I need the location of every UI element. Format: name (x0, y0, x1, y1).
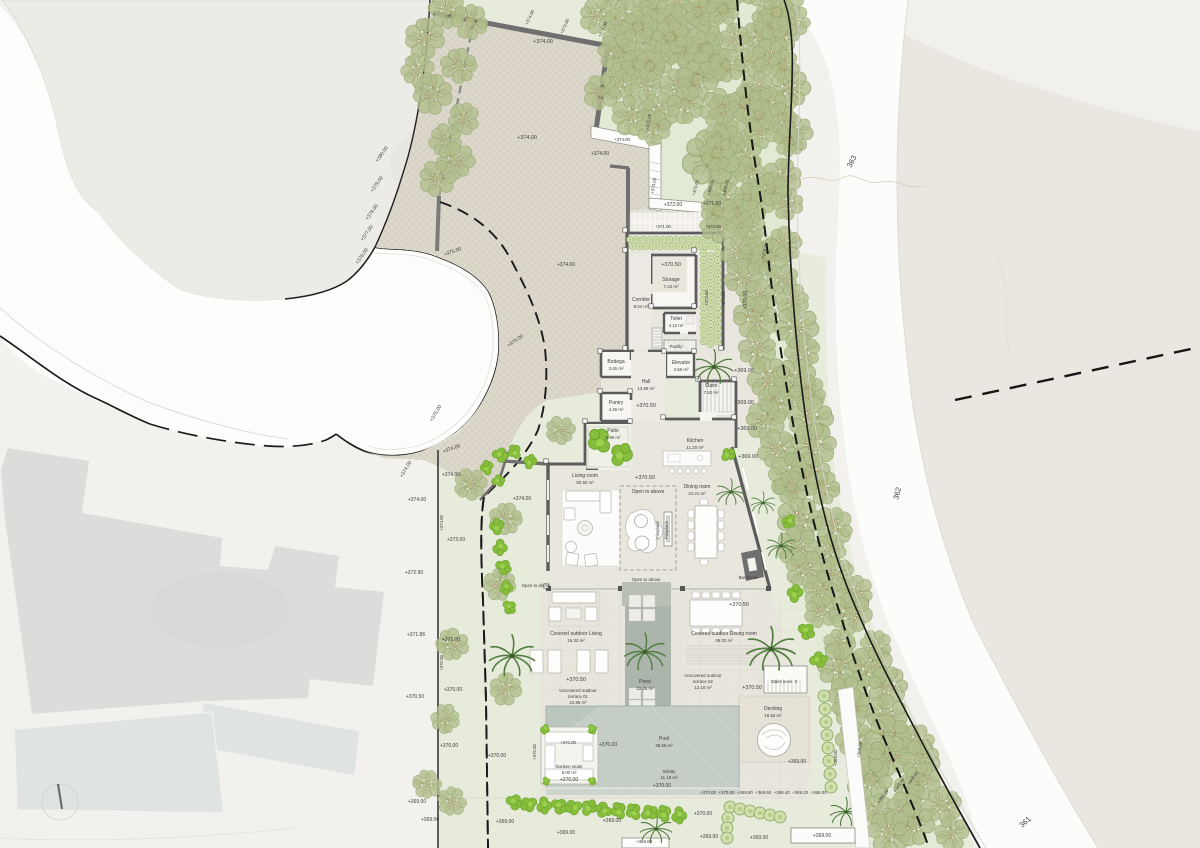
svg-text:+369.00: +369.00 (750, 835, 768, 841)
svg-text:+370.00: +370.00 (694, 811, 712, 817)
svg-text:Open to above: Open to above (632, 489, 665, 495)
svg-text:+374.00: +374.00 (517, 135, 537, 141)
svg-text:39.02 m²: 39.02 m² (715, 638, 733, 643)
svg-text:Uncovered outdoor: Uncovered outdoor (684, 673, 722, 678)
svg-text:+374.00: +374.00 (513, 496, 531, 502)
svg-text:4.49 m²: 4.49 m² (609, 407, 624, 412)
svg-text:+370.00: +370.00 (599, 742, 617, 748)
svg-text:Stairs level -2: Stairs level -2 (771, 679, 798, 684)
svg-text:+370.50: +370.50 (566, 677, 586, 683)
svg-text:11.19 m²: 11.19 m² (660, 775, 678, 780)
svg-text:19.62 m²: 19.62 m² (764, 713, 782, 718)
svg-text:3.46 m²: 3.46 m² (609, 366, 624, 371)
svg-text:+370.50: +370.50 (742, 685, 762, 691)
svg-text:+370.50: +370.50 (439, 654, 444, 671)
svg-text:Open to above: Open to above (522, 583, 551, 588)
svg-text:+370.00: +370.00 (721, 290, 726, 307)
svg-text:+370.50: +370.50 (406, 694, 424, 700)
svg-text:24.85 m²: 24.85 m² (569, 700, 587, 705)
svg-text:Covered outdoor Dining room: Covered outdoor Dining room (691, 631, 757, 637)
svg-text:+370.00: +370.00 (743, 291, 749, 309)
svg-text:+370.50: +370.50 (636, 403, 656, 409)
svg-text:+374.00: +374.00 (408, 497, 426, 503)
svg-text:+371.00: +371.00 (703, 201, 721, 207)
svg-text:+370.00: +370.00 (444, 687, 462, 693)
svg-text:50.50 m²: 50.50 m² (576, 480, 594, 485)
svg-text:+371.00: +371.00 (655, 224, 672, 229)
svg-text:Decking: Decking (764, 706, 782, 712)
svg-text:+374.00: +374.00 (614, 137, 631, 142)
svg-text:Barbecue: Barbecue (739, 575, 758, 580)
svg-text:+369.00: +369.00 (737, 426, 757, 432)
svg-text:Kitchen: Kitchen (687, 438, 704, 444)
svg-text:+369.00: +369.00 (738, 454, 758, 460)
svg-text:2.56 m²: 2.56 m² (674, 367, 689, 372)
svg-text:12.16 m²: 12.16 m² (694, 685, 712, 690)
svg-text:+369.00: +369.00 (833, 749, 838, 766)
svg-text:+374.00: +374.00 (557, 262, 575, 268)
svg-text:+369.00: +369.00 (557, 830, 575, 836)
svg-text:24.21 m²: 24.21 m² (688, 491, 706, 496)
svg-text:+374.00: +374.00 (439, 514, 444, 531)
svg-text:Elevator: Elevator (672, 360, 691, 366)
svg-text:Infinity: Infinity (663, 769, 676, 774)
svg-text:+372.50: +372.50 (704, 289, 709, 306)
svg-text:+369.00: +369.00 (496, 819, 514, 825)
svg-text:13.59 m²: 13.59 m² (637, 386, 655, 391)
svg-text:+369.00: +369.00 (636, 839, 653, 844)
svg-text:22.25 m²: 22.25 m² (636, 686, 654, 691)
svg-text:Fireplace: Fireplace (655, 520, 660, 539)
svg-text:+369.00: +369.00 (603, 818, 621, 824)
svg-text:11.20 m²: 11.20 m² (686, 445, 704, 450)
svg-text:Pond: Pond (639, 679, 651, 685)
svg-text:+370.00: +370.00 (560, 777, 578, 783)
svg-text:Covered outdoor Living: Covered outdoor Living (550, 631, 602, 637)
svg-text:+371.00: +371.00 (442, 637, 460, 643)
svg-text:4.12 m²: 4.12 m² (669, 323, 684, 328)
svg-text:Sunken seats: Sunken seats (556, 764, 583, 769)
svg-text:+370.00: +370.00 (440, 743, 458, 749)
svg-text:5.99 m²: 5.99 m² (606, 435, 621, 440)
svg-text:+374.00: +374.00 (442, 472, 460, 478)
svg-text:+370.00: +370.00 (705, 224, 722, 229)
svg-text:Living room: Living room (572, 473, 598, 479)
svg-text:terrace 02: terrace 02 (693, 679, 713, 684)
svg-text:+370.00: +370.00 (653, 783, 671, 789)
svg-text:+369.00: +369.00 (734, 368, 754, 374)
svg-text:Bodega: Bodega (607, 359, 624, 365)
svg-text:8.04 m²: 8.04 m² (634, 304, 649, 309)
svg-text:+369.00: +369.00 (788, 759, 806, 765)
svg-text:+370.50: +370.50 (661, 262, 681, 268)
svg-text:+372.00: +372.00 (664, 202, 682, 208)
svg-text:35.55 m²: 35.55 m² (655, 743, 673, 748)
svg-text:9.00 m²: 9.00 m² (562, 770, 577, 775)
svg-text:Open to above: Open to above (632, 577, 661, 582)
svg-text:+370.00: +370.00 (488, 753, 506, 759)
svg-text:Stairs: Stairs (705, 383, 718, 389)
svg-text:+374.00: +374.00 (533, 39, 553, 45)
svg-text:Uncovered outdoor: Uncovered outdoor (559, 688, 597, 693)
svg-text:Pantry: Pantry (609, 400, 624, 406)
svg-text:Pool: Pool (659, 736, 669, 742)
svg-text:terrace 01: terrace 01 (568, 694, 588, 699)
svg-text:+370.50: +370.50 (729, 602, 749, 608)
svg-text:+374.00: +374.00 (591, 151, 609, 157)
svg-text:+372.90: +372.90 (405, 570, 423, 576)
svg-text:+369.00: +369.00 (813, 833, 831, 839)
svg-text:+369.00: +369.00 (700, 834, 718, 840)
svg-text:+371.86: +371.86 (407, 632, 425, 638)
svg-text:+370.50: +370.50 (635, 475, 655, 481)
svg-text:Toilet: Toilet (670, 316, 682, 322)
svg-text:Dining room: Dining room (684, 484, 711, 490)
svg-text:Storage: Storage (662, 277, 680, 283)
svg-text:7.82 m²: 7.82 m² (704, 390, 719, 395)
svg-text:Fireplace: Fireplace (664, 520, 669, 539)
svg-text:+369.00: +369.00 (734, 400, 754, 406)
svg-text:+370.00 +370.00 +369.80 +36: +370.00 +370.00 +369.80 +369.60 +369.40 … (700, 790, 827, 795)
svg-text:+370.50: +370.50 (532, 743, 537, 760)
svg-text:+370.00: +370.00 (560, 740, 577, 745)
svg-text:Hall: Hall (642, 379, 651, 385)
svg-text:+369.00: +369.00 (408, 799, 426, 805)
svg-text:+369.00: +369.00 (421, 817, 439, 823)
svg-text:7.43 m²: 7.43 m² (664, 284, 679, 289)
svg-text:Corridor: Corridor (632, 297, 650, 303)
svg-text:Patio: Patio (607, 428, 619, 434)
svg-text:+373.00: +373.00 (447, 537, 465, 543)
svg-text:16.32 m²: 16.32 m² (567, 638, 585, 643)
svg-text:Pasillo: Pasillo (670, 344, 683, 349)
